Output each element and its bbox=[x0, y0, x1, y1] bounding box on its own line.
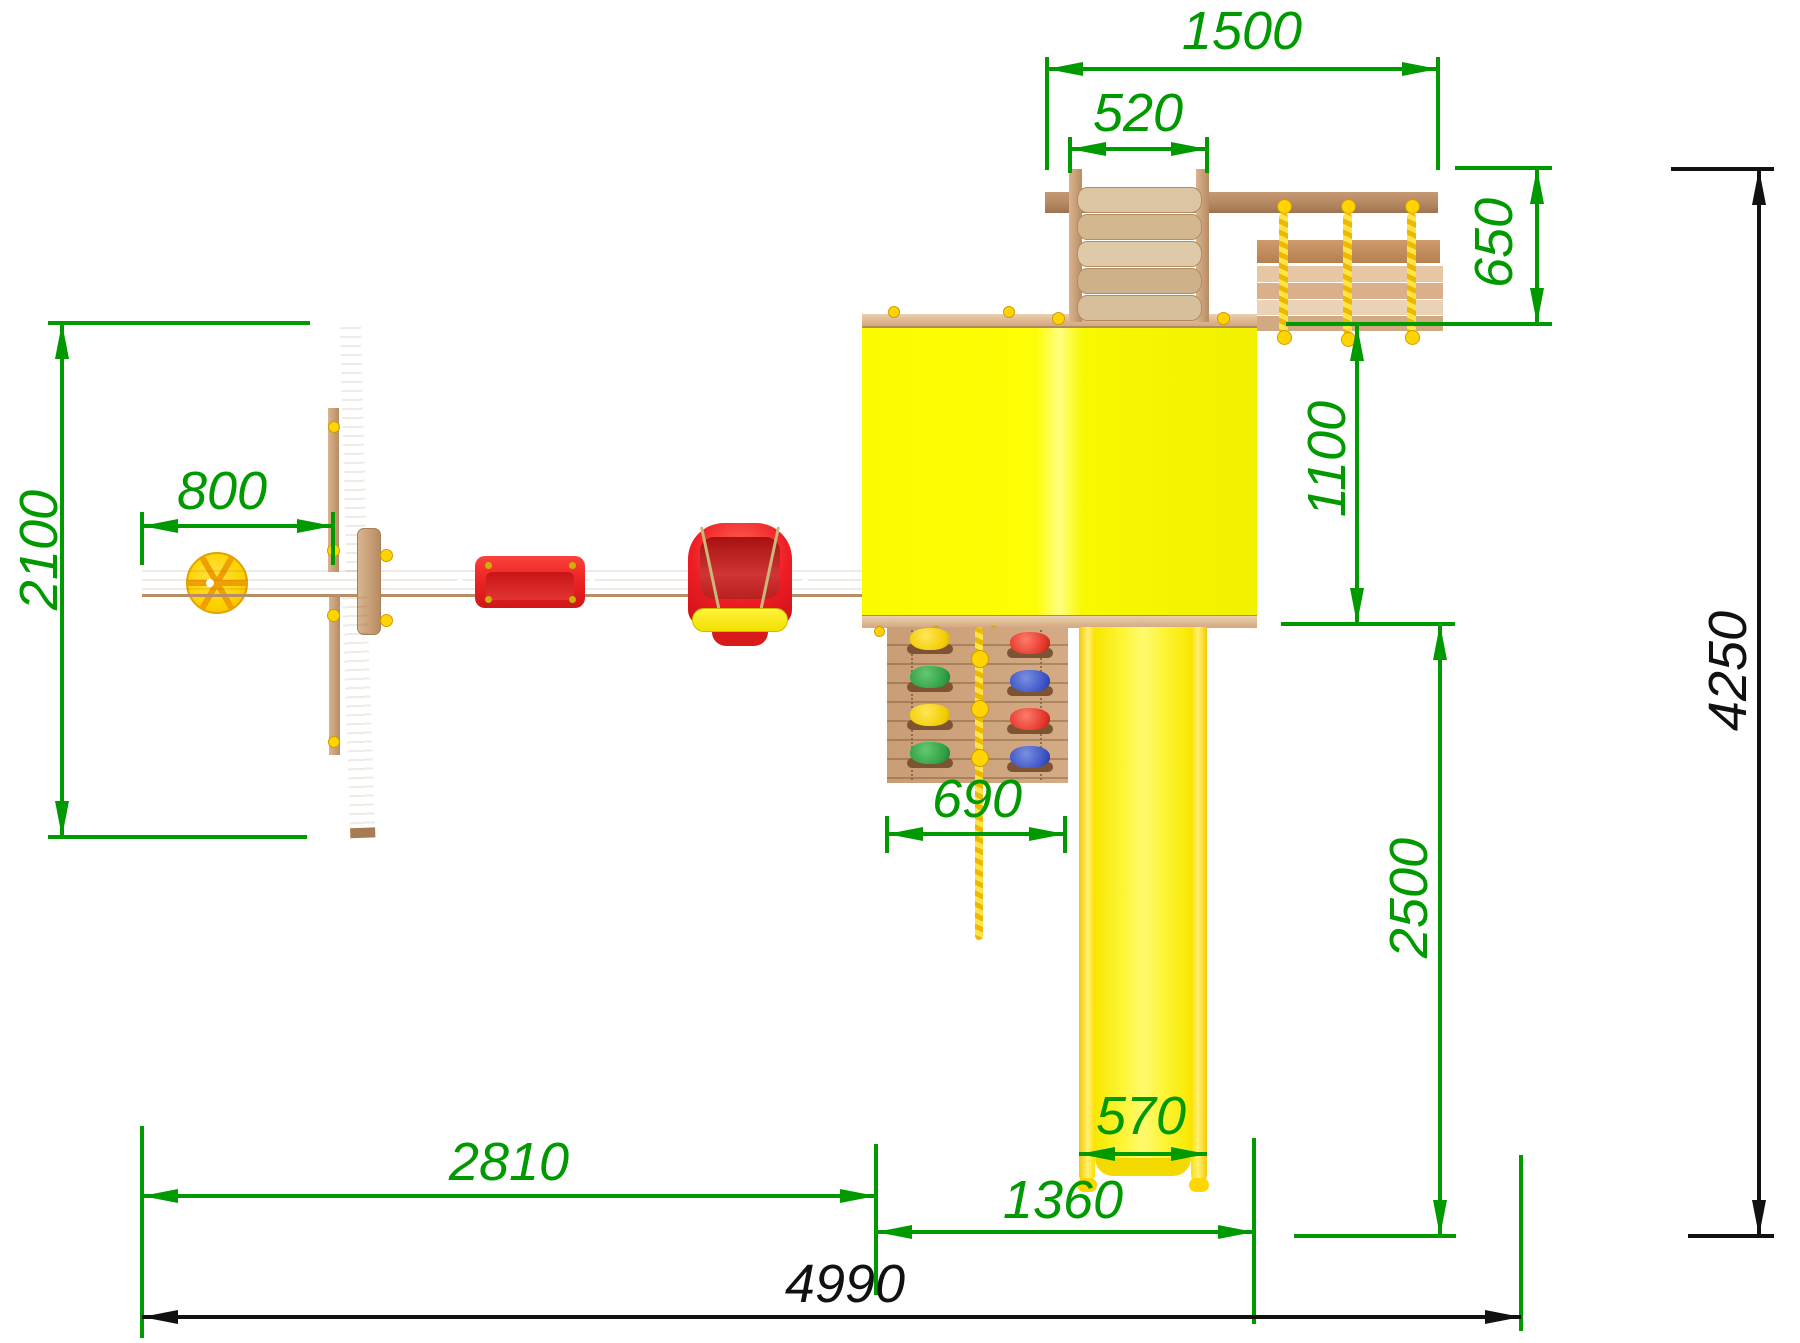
arrowhead bbox=[876, 1225, 912, 1239]
arrowhead bbox=[1070, 142, 1106, 156]
climb-grip-red bbox=[1010, 632, 1050, 654]
beam-bolt bbox=[206, 579, 214, 587]
plank-bolt bbox=[1003, 306, 1015, 318]
ladder-rung bbox=[1077, 241, 1202, 267]
arrowhead bbox=[1047, 62, 1083, 76]
bridge-rope bbox=[1279, 213, 1288, 334]
extension-line bbox=[1281, 622, 1455, 626]
rope-knot bbox=[1277, 199, 1292, 214]
flat-swing-seat-inner bbox=[486, 572, 574, 600]
arrowhead bbox=[1433, 624, 1447, 660]
climb-grip-yellow bbox=[910, 704, 950, 726]
ladder-rung bbox=[1077, 268, 1202, 294]
dim-label-2500: 2500 bbox=[1382, 838, 1436, 958]
seat-bolt bbox=[485, 562, 492, 569]
arrowhead bbox=[1350, 325, 1364, 361]
extension-line bbox=[1294, 1234, 1456, 1238]
arrowhead bbox=[1485, 1310, 1521, 1324]
seat-bolt bbox=[569, 562, 576, 569]
climb-grip-red bbox=[1010, 708, 1050, 730]
extension-line bbox=[1519, 1155, 1523, 1331]
dim-label-1100: 1100 bbox=[1300, 401, 1354, 517]
aframe-bolt bbox=[380, 614, 393, 627]
bridge-rope bbox=[1343, 213, 1352, 334]
aframe-bolt bbox=[328, 736, 340, 748]
arrowhead bbox=[1029, 827, 1065, 841]
arrowhead bbox=[55, 323, 69, 359]
arrowhead bbox=[142, 1189, 178, 1203]
rope-knot bbox=[971, 650, 989, 668]
dim-label-1500: 1500 bbox=[1182, 4, 1302, 58]
rope-knot bbox=[971, 749, 989, 767]
rope-knot bbox=[971, 700, 989, 718]
climb-grip-blue bbox=[1010, 670, 1050, 692]
arrowhead bbox=[1433, 1200, 1447, 1236]
arrowhead bbox=[840, 1189, 876, 1203]
arrowhead bbox=[1079, 1147, 1115, 1161]
dim-label-4250: 4250 bbox=[1701, 611, 1755, 731]
extension-line bbox=[48, 835, 307, 839]
climb-grip-green bbox=[910, 742, 950, 764]
arrowhead bbox=[1218, 1225, 1254, 1239]
arrowhead bbox=[1752, 1200, 1766, 1236]
seat-bolt bbox=[485, 596, 492, 603]
arrowhead bbox=[1171, 142, 1207, 156]
arrowhead bbox=[1530, 288, 1544, 324]
ladder-rung bbox=[1077, 214, 1202, 240]
playhouse-roof bbox=[862, 328, 1257, 617]
beam-bolt bbox=[588, 579, 596, 587]
slide-right-rail bbox=[1191, 627, 1207, 1183]
aframe-bolt bbox=[380, 549, 393, 562]
ladder-rung bbox=[1077, 187, 1202, 213]
extension-line bbox=[48, 321, 310, 325]
arrowhead bbox=[297, 519, 333, 533]
plank-bolt bbox=[1052, 312, 1065, 325]
arrowhead bbox=[142, 519, 178, 533]
arrowhead bbox=[1530, 168, 1544, 204]
plank-bolt bbox=[888, 306, 900, 318]
dimension-line bbox=[876, 1230, 1254, 1234]
dimension-line bbox=[142, 1194, 876, 1198]
dim-label-650: 650 bbox=[1467, 198, 1521, 288]
slide-foot bbox=[1189, 1178, 1209, 1192]
arrowhead bbox=[55, 801, 69, 837]
ladder-rung bbox=[1077, 295, 1202, 321]
slide-left-rail bbox=[1079, 627, 1095, 1183]
plank-bolt bbox=[874, 626, 885, 637]
dim-label-800: 800 bbox=[177, 464, 267, 518]
climb-grip-yellow bbox=[910, 628, 950, 650]
arrowhead bbox=[887, 827, 923, 841]
aframe-bolt bbox=[328, 421, 340, 433]
dim-label-2810: 2810 bbox=[449, 1135, 569, 1189]
playground-top-view-drawing: 1500 520 650 1100 2100 bbox=[0, 0, 1800, 1343]
rope-knot bbox=[1405, 199, 1420, 214]
dim-label-690: 690 bbox=[932, 772, 1022, 826]
arrowhead bbox=[142, 1310, 178, 1324]
dim-label-4990: 4990 bbox=[785, 1257, 905, 1311]
rope-knot bbox=[1341, 199, 1356, 214]
rope-knot bbox=[1277, 330, 1292, 345]
rope-knot bbox=[1405, 330, 1420, 345]
dim-label-2100: 2100 bbox=[12, 490, 66, 610]
aframe-bolt bbox=[327, 609, 340, 622]
dim-label-1360: 1360 bbox=[1003, 1173, 1123, 1227]
arrowhead bbox=[1402, 62, 1438, 76]
climb-grip-blue bbox=[1010, 746, 1050, 768]
dim-label-570: 570 bbox=[1096, 1089, 1186, 1143]
dimension-line bbox=[142, 1315, 1521, 1319]
arrowhead bbox=[1752, 169, 1766, 205]
dimension-line bbox=[1047, 67, 1438, 71]
seat-bolt bbox=[569, 596, 576, 603]
beam-bolt bbox=[456, 579, 464, 587]
arrowhead bbox=[1171, 1147, 1207, 1161]
dim-label-520: 520 bbox=[1093, 86, 1183, 140]
climb-grip-green bbox=[910, 666, 950, 688]
plank-bolt bbox=[1217, 312, 1230, 325]
beam-bolt bbox=[801, 579, 809, 587]
arrowhead bbox=[1350, 588, 1364, 624]
extension-line bbox=[140, 1126, 144, 1338]
extension-line bbox=[1286, 322, 1552, 326]
baby-swing-bumper bbox=[692, 608, 788, 632]
bridge-rope bbox=[1407, 213, 1416, 334]
